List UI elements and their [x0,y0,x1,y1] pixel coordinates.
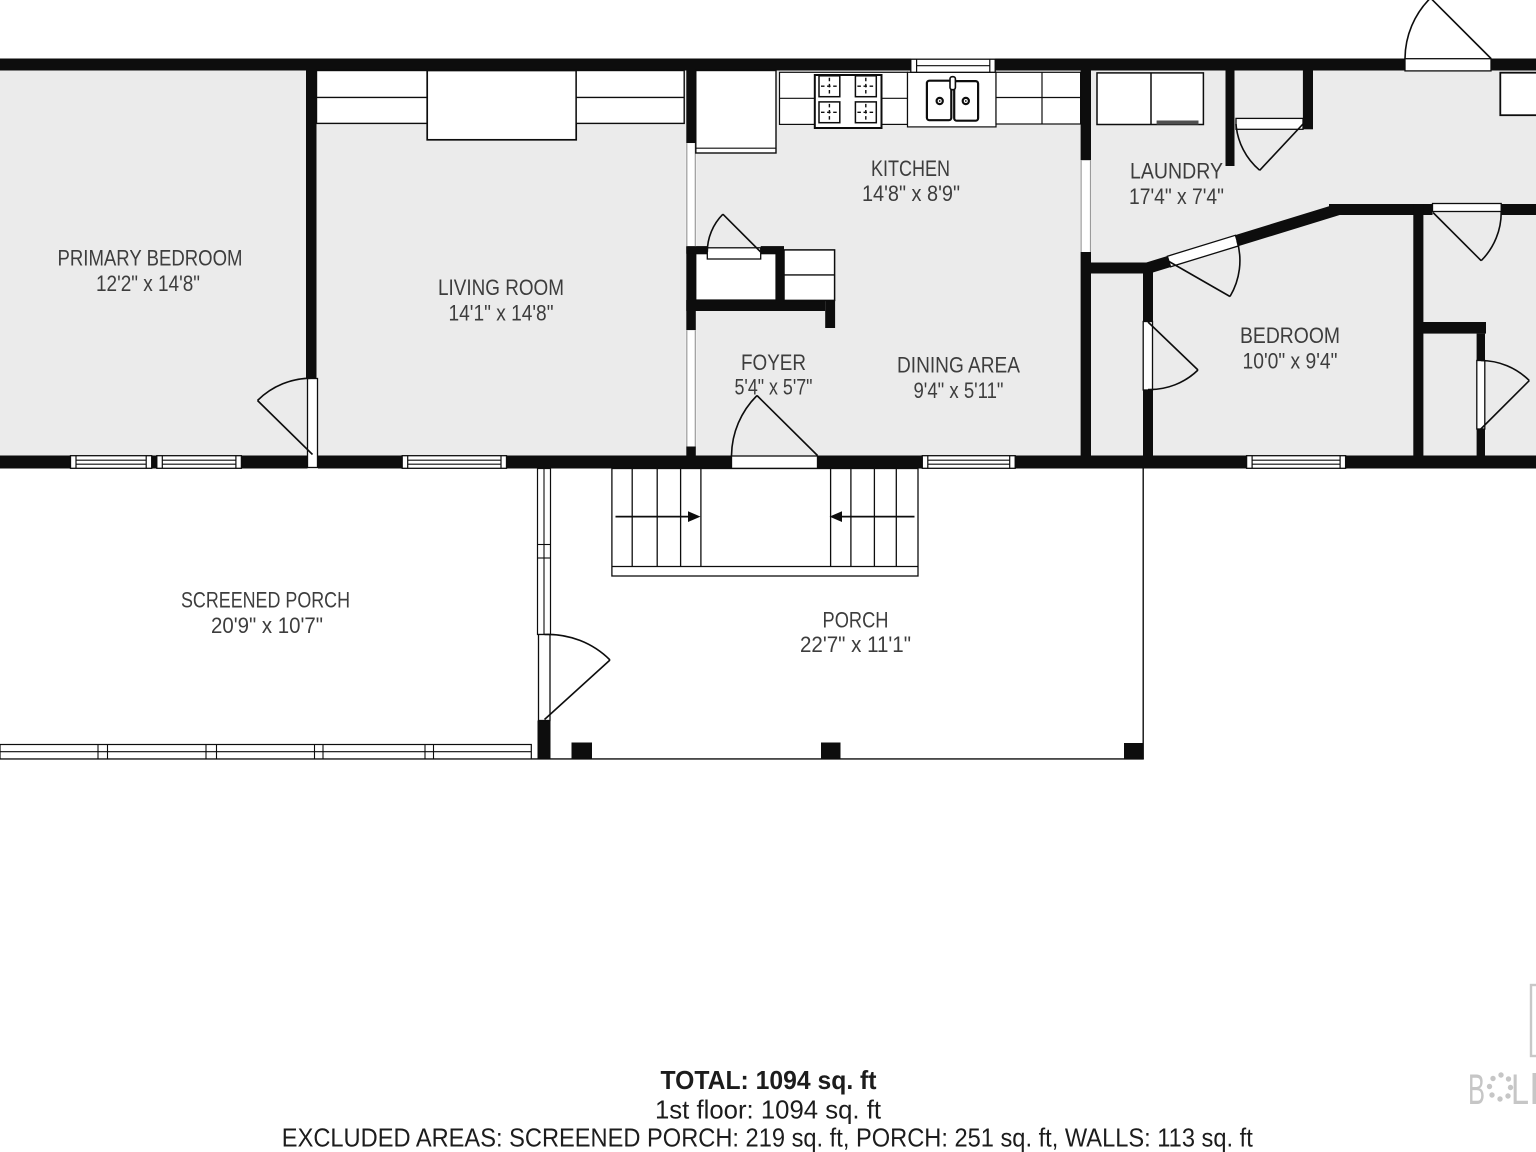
svg-text:TOTAL: 1094 sq. ft: TOTAL: 1094 sq. ft [661,1065,877,1095]
svg-text:SCREENED PORCH: SCREENED PORCH [181,588,350,613]
svg-text:PRIMARY BEDROOM: PRIMARY BEDROOM [58,246,243,271]
svg-text:17'4" x 7'4": 17'4" x 7'4" [1129,184,1224,209]
svg-text:20'9" x 10'7": 20'9" x 10'7" [211,613,323,638]
svg-text:14'1" x 14'8": 14'1" x 14'8" [449,301,554,326]
svg-text:L: L [1511,1066,1529,1114]
svg-text:9'4" x 5'11": 9'4" x 5'11" [914,378,1004,403]
svg-text:10'0" x 9'4": 10'0" x 9'4" [1243,349,1338,374]
svg-text:EXCLUDED AREAS: SCREENED PORCH: EXCLUDED AREAS: SCREENED PORCH: 219 sq. … [282,1123,1254,1152]
svg-text:14'8" x 8'9": 14'8" x 8'9" [862,181,960,206]
svg-text:PORCH: PORCH [823,608,889,633]
svg-text:B: B [1468,1066,1485,1114]
svg-text:22'7" x 11'1": 22'7" x 11'1" [800,632,911,657]
svg-text:DINING AREA: DINING AREA [897,353,1020,378]
svg-text:12'2" x 14'8": 12'2" x 14'8" [96,271,200,296]
svg-text:1st floor: 1094 sq. ft: 1st floor: 1094 sq. ft [655,1095,882,1125]
svg-text:LAUNDRY: LAUNDRY [1130,159,1223,184]
svg-text:LIVING ROOM: LIVING ROOM [438,275,564,300]
svg-text:FOYER: FOYER [741,350,806,375]
svg-text:BEDROOM: BEDROOM [1240,323,1340,348]
svg-text:KITCHEN: KITCHEN [871,156,950,181]
svg-text:5'4" x 5'7": 5'4" x 5'7" [735,375,813,400]
